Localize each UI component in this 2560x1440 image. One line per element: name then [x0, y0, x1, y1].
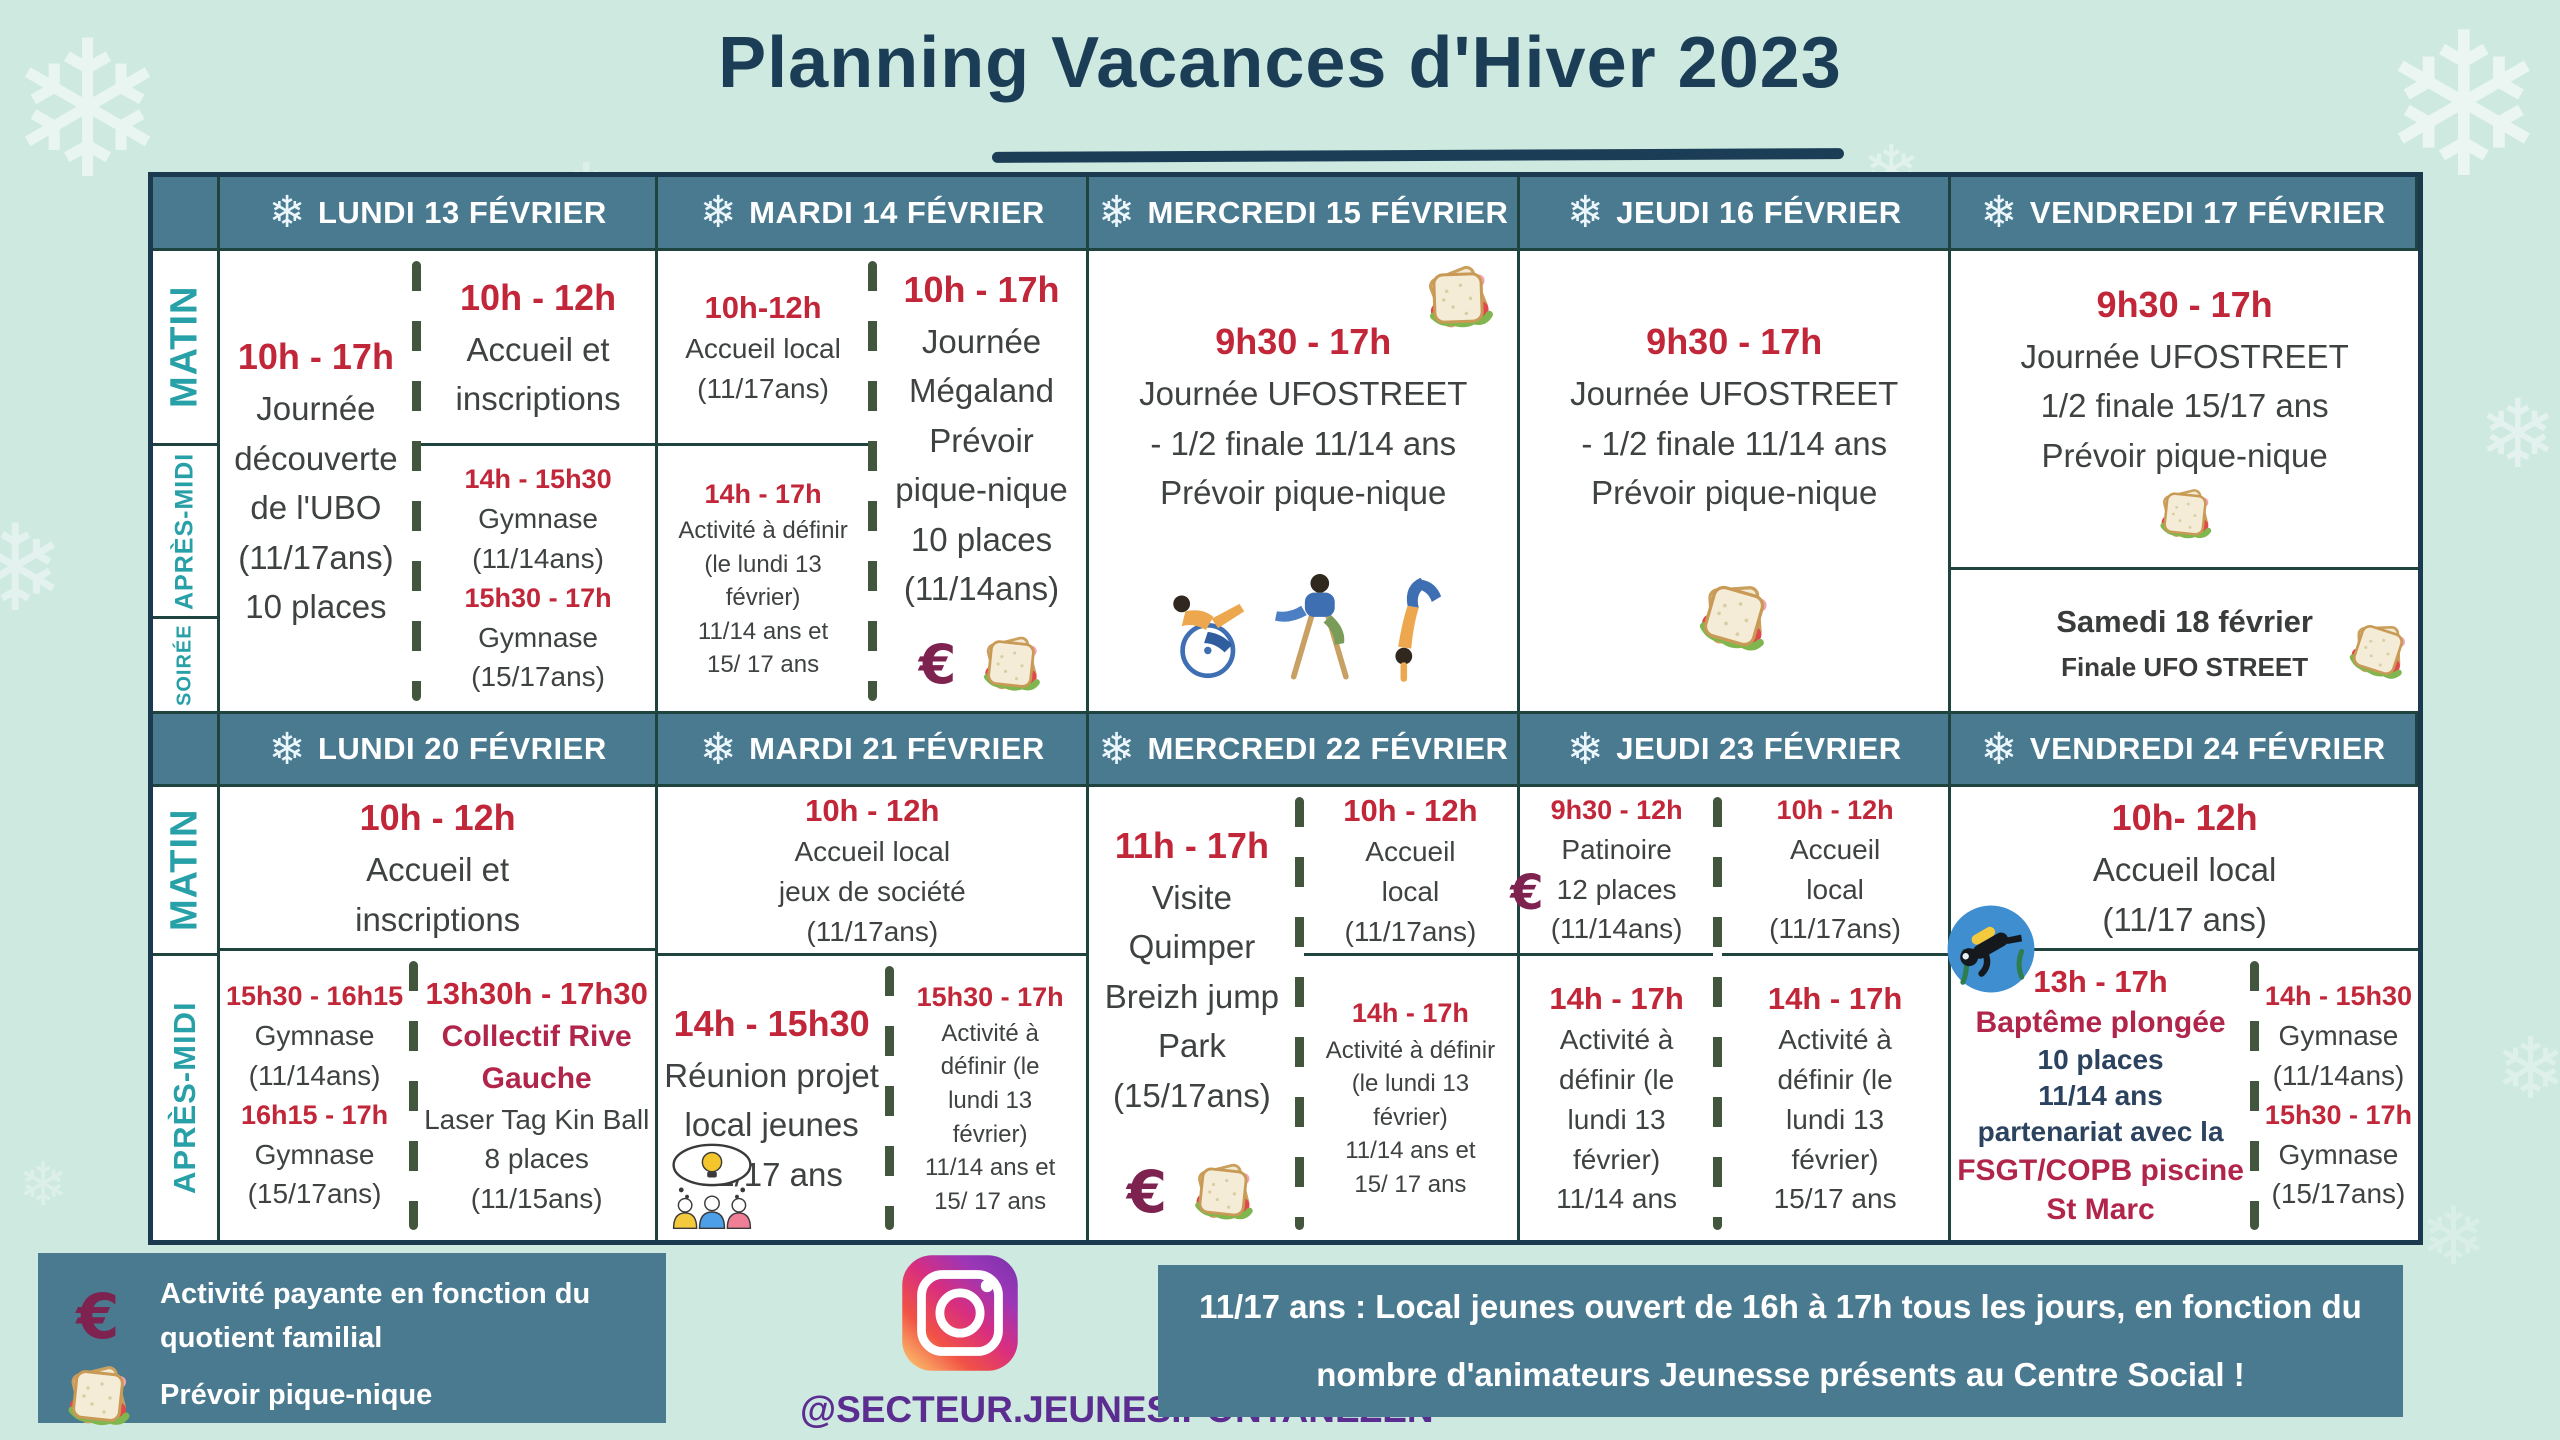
text-line: (11/14ans) — [904, 564, 1059, 614]
text-line: février) — [1373, 1101, 1448, 1135]
text-line: 13h30h - 17h30 — [426, 972, 648, 1015]
text-line: 14h - 15h30 — [674, 997, 870, 1051]
cell-activite-a-definir: 14h - 17hActivité à définir(le lundi 13f… — [658, 446, 867, 711]
snowflake-decoration: ❄ — [18, 1150, 68, 1220]
text-line: (11/17ans) — [806, 912, 938, 952]
sandwich-icon — [2155, 484, 2215, 544]
text-line: Journée UFOSTREET — [1139, 369, 1467, 419]
day-header-label: LUNDI 20 FÉVRIER — [318, 731, 607, 767]
text-line: découverte — [234, 434, 397, 484]
cell-bapteme-plongee: 13h - 17hBaptême plongée10 places11/14 a… — [1951, 958, 2250, 1232]
day-header-jeudi-23: ❄JEUDI 23 FÉVRIER — [1520, 711, 1951, 787]
day-header-lundi-20: ❄LUNDI 20 FÉVRIER — [220, 711, 658, 787]
text-line: (11/14ans) — [472, 539, 604, 579]
text-line: Activité à définir — [1326, 1034, 1495, 1068]
text-line: 11/14 ans et — [1345, 1134, 1475, 1168]
text-line: février) — [1573, 1140, 1660, 1180]
text-line: 9h30 - 12h — [1551, 791, 1683, 830]
snowflake-icon: ❄ — [1981, 724, 2018, 775]
text-line: Journée — [256, 384, 375, 434]
text-line: Accueil — [1365, 832, 1455, 872]
text-line: 15/17 ans — [1774, 1179, 1897, 1219]
text-line: lundi 13 — [948, 1084, 1032, 1118]
text-line: 10h - 17h — [238, 330, 394, 384]
cell-patinoire: 9h30 - 12hPatinoire12 places(11/14ans) — [1520, 787, 1713, 953]
snowflake-decoration: ❄ — [2478, 380, 2558, 490]
snowflake-decoration: ❄ — [0, 500, 66, 639]
text-line: Baptême plongée — [1976, 1003, 2226, 1042]
text-line: Activité à — [1560, 1020, 1674, 1060]
snowflake-icon: ❄ — [1981, 187, 2018, 238]
day-header-label: VENDREDI 24 FÉVRIER — [2030, 731, 2386, 767]
text-line: (15/17ans) — [248, 1174, 382, 1214]
text-line: 14h - 15h30 — [465, 460, 612, 499]
day-cell-jeudi-23: € 9h30 - 12hPatinoire12 places(11/14ans)… — [1520, 787, 1951, 1240]
instagram-block: @SECTEUR.JEUNES.PONTANEZEN — [800, 1250, 1120, 1431]
text-line: 14h - 17h — [1549, 977, 1683, 1020]
text-line: Gymnase — [2279, 1135, 2399, 1175]
cell-gymnase-vendredi24: 14h - 15h30Gymnase(11/14ans)15h30 - 17hG… — [2259, 951, 2418, 1240]
text-line: (11/15ans) — [471, 1179, 603, 1219]
cell-activite-11-14: 14h - 17hActivité àdéfinir (lelundi 13fé… — [1520, 956, 1713, 1240]
text-line: 15/ 17 ans — [1354, 1168, 1466, 1202]
day-header-label: MARDI 21 FÉVRIER — [749, 731, 1045, 767]
cell-accueil-local: 10h - 12hAccueillocal(11/17ans) — [1304, 787, 1518, 953]
legend-text: Prévoir pique-nique — [160, 1374, 432, 1418]
text-line: (le lundi 13 — [704, 548, 821, 582]
snowflake-icon: ❄ — [1567, 724, 1604, 775]
text-line: partenariat avec la — [1978, 1114, 2224, 1150]
text-line: Prévoir pique-nique — [1160, 468, 1446, 518]
row-label-matin: MATIN — [153, 251, 217, 443]
breakdancers-illustration — [1153, 546, 1453, 686]
text-line: 10h - 12h — [460, 271, 616, 325]
text-line: (15/17ans) — [1113, 1071, 1271, 1121]
snowflake-icon: ❄ — [269, 724, 306, 775]
day-header-vendredi-17: ❄VENDREDI 17 FÉVRIER — [1951, 177, 2418, 251]
sandwich-icon — [1189, 1158, 1257, 1226]
sandwich-icon — [2340, 612, 2416, 688]
text-line: Samedi 18 février — [2056, 596, 2313, 649]
cell-accueil-local: 10h-12hAccueil local(11/17ans) — [658, 251, 867, 443]
instagram-handle: @SECTEUR.JEUNES.PONTANEZEN — [800, 1389, 1120, 1431]
header-corner-week2 — [153, 711, 220, 787]
text-line: (11/17ans) — [697, 369, 829, 409]
dashed-separator — [409, 961, 418, 1230]
text-line: 12 places — [1557, 870, 1677, 910]
instagram-icon — [897, 1250, 1023, 1376]
cell-accueil-local: 10h - 12hAccueillocal(11/17ans) — [1722, 787, 1948, 953]
text-line: Gauche — [482, 1058, 592, 1100]
text-line: Accueil local — [794, 832, 950, 872]
euro-icon: € — [1127, 1158, 1167, 1226]
snowflake-icon: ❄ — [700, 187, 737, 238]
snowflake-icon: ❄ — [700, 724, 737, 775]
day-header-mercredi-15: ❄MERCREDI 15 FÉVRIER — [1089, 177, 1520, 251]
text-line: 13h - 17h — [2033, 962, 2167, 1002]
cell-quimper-breizh-jump: 11h - 17hVisiteQuimperBreizh jumpPark(15… — [1089, 787, 1294, 1152]
dashed-separator — [1713, 797, 1722, 1230]
day-header-label: JEUDI 23 FÉVRIER — [1616, 731, 1901, 767]
text-line: inscriptions — [355, 895, 520, 945]
text-line: définir (le — [1559, 1060, 1674, 1100]
text-line: FSGT/COPB piscine — [1957, 1151, 2244, 1190]
text-line: Gymnase — [255, 1016, 375, 1056]
text-line: (11/14ans) — [249, 1056, 381, 1096]
text-line: 1/2 finale 15/17 ans — [2041, 381, 2329, 431]
day-cell-mardi-14: 10h-12hAccueil local(11/17ans) 14h - 17h… — [658, 251, 1089, 711]
legend-item-paid-activity: € Activité payante en fonction du quotie… — [62, 1273, 642, 1360]
sandwich-icon — [1689, 571, 1779, 661]
cell-gymnase-lundi20: 15h30 - 16h15Gymnase(11/14ans)16h15 - 17… — [220, 951, 409, 1240]
sandwich-icon — [62, 1360, 134, 1432]
text-line: 11/14 ans — [2038, 1078, 2163, 1114]
text-line: Quimper — [1129, 922, 1256, 972]
text-line: (11/17ans) — [238, 533, 393, 583]
euro-icon: € — [919, 633, 957, 696]
row-label-apres-midi: APRÈS-MIDI — [153, 956, 217, 1240]
row-labels-week1: MATIN APRÈS-MIDI SOIRÉE — [153, 251, 220, 711]
day-header-mercredi-22: ❄MERCREDI 22 FÉVRIER — [1089, 711, 1520, 787]
cell-activite-a-definir: 15h30 - 17hActivité àdéfinir (lelundi 13… — [894, 956, 1086, 1240]
text-line: St Marc — [2046, 1190, 2154, 1229]
text-line: (le lundi 13 — [1352, 1067, 1469, 1101]
text-line: 9h30 - 17h — [1646, 315, 1822, 369]
cell-activite-15-17: 14h - 17hActivité àdéfinir (lelundi 13fé… — [1722, 956, 1948, 1240]
sandwich-icon — [1416, 256, 1500, 340]
day-header-label: MERCREDI 22 FÉVRIER — [1147, 731, 1508, 767]
text-line: Activité à — [1778, 1020, 1892, 1060]
dashed-separator — [885, 966, 894, 1230]
text-line: (15/17ans) — [471, 657, 605, 697]
text-line: Prévoir pique-nique — [2042, 431, 2328, 481]
text-line: Visite — [1152, 873, 1232, 923]
text-line: - 1/2 finale 11/14 ans — [1581, 419, 1887, 469]
text-line: jeux de société — [779, 872, 966, 912]
text-line: Patinoire — [1561, 830, 1672, 870]
planning-table: ❄LUNDI 13 FÉVRIER ❄MARDI 14 FÉVRIER ❄MER… — [148, 172, 2423, 1245]
snowflake-icon: ❄ — [269, 187, 306, 238]
legend: € Activité payante en fonction du quotie… — [38, 1253, 666, 1423]
text-line: 9h30 - 17h — [2097, 278, 2273, 332]
text-line: Gymnase — [478, 618, 598, 658]
row-label-matin: MATIN — [153, 787, 217, 953]
header-corner-week1 — [153, 177, 220, 251]
text-line: Prévoir — [929, 416, 1034, 466]
text-line: nombre d'animateurs Jeunesse présents au… — [1316, 1341, 2245, 1409]
text-line: Accueil local — [685, 329, 841, 369]
day-header-label: VENDREDI 17 FÉVRIER — [2030, 195, 2386, 231]
snowflake-icon: ❄ — [1098, 724, 1135, 775]
legend-item-picnic: Prévoir pique-nique — [62, 1360, 642, 1432]
text-line: Gymnase — [478, 499, 598, 539]
snowflake-decoration: ❄ — [2420, 1190, 2487, 1283]
day-header-label: LUNDI 13 FÉVRIER — [318, 195, 607, 231]
day-header-mardi-21: ❄MARDI 21 FÉVRIER — [658, 711, 1089, 787]
cell-megaland-icons: € — [877, 625, 1086, 711]
day-cell-vendredi-24: 10h- 12hAccueil local(11/17 ans) 13h - 1… — [1951, 787, 2418, 1240]
text-line: 14h - 15h30 — [2265, 977, 2412, 1016]
text-line: lundi 13 — [1568, 1100, 1666, 1140]
text-line: février) — [1792, 1140, 1879, 1180]
dashed-separator — [868, 261, 877, 701]
cell-activite-a-definir: 14h - 17hActivité à définir(le lundi 13f… — [1304, 956, 1518, 1240]
day-header-mardi-14: ❄MARDI 14 FÉVRIER — [658, 177, 1089, 251]
text-line: Activité à — [941, 1017, 1038, 1051]
day-cell-lundi-20: 10h - 12hAccueil etinscriptions 15h30 - … — [220, 787, 658, 1240]
cell-ubo-day: 10h - 17hJournéedécouvertede l'UBO(11/17… — [220, 251, 412, 711]
text-line: Activité à définir — [678, 514, 847, 548]
day-cell-mercredi-22: 11h - 17hVisiteQuimperBreizh jumpPark(15… — [1089, 787, 1520, 1240]
text-line: 15h30 - 17h — [2265, 1096, 2412, 1135]
text-line: Gymnase — [2279, 1016, 2399, 1056]
text-line: Journée — [922, 317, 1041, 367]
text-line: 15/ 17 ans — [934, 1185, 1046, 1219]
text-line: Accueil et — [467, 325, 610, 375]
text-line: février) — [726, 581, 801, 615]
text-line: 15h30 - 16h15 — [226, 977, 403, 1016]
text-line: 16h15 - 17h — [241, 1096, 388, 1135]
text-line: 11/17 ans : Local jeunes ouvert de 16h à… — [1199, 1273, 2362, 1341]
text-line: définir (le — [1777, 1060, 1892, 1100]
cell-collectif-rive-gauche: 13h30h - 17h30Collectif RiveGaucheLaser … — [418, 951, 655, 1240]
text-line: (11/14ans) — [1551, 909, 1683, 949]
text-line: 14h - 17h — [1352, 994, 1469, 1033]
text-line: lundi 13 — [1786, 1100, 1884, 1140]
cell-gymnase-lundi13: 14h - 15h30Gymnase(11/14ans)15h30 - 17hG… — [421, 446, 655, 711]
dashed-separator — [1295, 797, 1304, 1230]
text-line: Accueil et — [366, 845, 509, 895]
text-line: (11/17ans) — [1345, 912, 1477, 952]
text-line: Laser Tag Kin Ball — [424, 1100, 649, 1140]
scuba-diver-icon — [1945, 903, 2037, 995]
day-cell-vendredi-17: 9h30 - 17hJournée UFOSTREET1/2 finale 15… — [1951, 251, 2418, 711]
info-banner: 11/17 ans : Local jeunes ouvert de 16h à… — [1158, 1265, 2403, 1417]
text-line: 10h - 12h — [1343, 789, 1477, 832]
text-line: 10h - 12h — [1777, 791, 1894, 830]
text-line: 10 places — [911, 515, 1052, 565]
cell-ufostreet-15-17: 9h30 - 17hJournée UFOSTREET1/2 finale 15… — [1951, 274, 2418, 485]
text-line: Finale UFO STREET — [2061, 649, 2308, 685]
sandwich-icon — [978, 631, 1044, 697]
text-line: 9h30 - 17h — [1215, 315, 1391, 369]
legend-text: Activité payante en fonction du quotient… — [160, 1273, 642, 1360]
text-line: 14h - 17h — [1768, 977, 1902, 1020]
cell-megaland: 10h - 17hJournéeMégalandPrévoirpique-niq… — [877, 251, 1086, 625]
text-line: 10 places — [245, 582, 386, 632]
text-line: (11/17ans) — [1769, 909, 1901, 949]
text-line: 15h30 - 17h — [465, 579, 612, 618]
text-line: (15/17ans) — [2272, 1174, 2406, 1214]
text-line: 11h - 17h — [1115, 819, 1269, 873]
row-labels-week2: MATIN APRÈS-MIDI — [153, 787, 220, 1240]
day-header-lundi-13: ❄LUNDI 13 FÉVRIER — [220, 177, 658, 251]
text-line: 8 places — [485, 1139, 589, 1179]
row-label-apres-midi: APRÈS-MIDI — [153, 446, 217, 616]
text-line: Prévoir pique-nique — [1591, 468, 1877, 518]
cell-quimper-icons: € — [1089, 1152, 1294, 1240]
euro-icon: € — [1510, 865, 1543, 921]
text-line: (11/17 ans) — [2102, 895, 2266, 945]
snowflake-decoration: ❄ — [2495, 1020, 2560, 1119]
euro-icon: € — [62, 1280, 134, 1353]
cell-samedi-18-finale: Samedi 18 févrierFinale UFO STREET — [2050, 592, 2319, 689]
text-line: Collectif Rive — [442, 1016, 632, 1058]
text-line: Mégaland — [909, 366, 1054, 416]
text-line: Journée UFOSTREET — [1570, 369, 1898, 419]
text-line: Breizh jump — [1105, 972, 1279, 1022]
text-line: Accueil local — [2093, 845, 2276, 895]
snowflake-icon: ❄ — [1567, 187, 1604, 238]
text-line: Réunion projet — [664, 1051, 879, 1101]
text-line: février) — [953, 1118, 1028, 1152]
text-line: Park — [1158, 1021, 1226, 1071]
snowflake-icon: ❄ — [1098, 187, 1135, 238]
row-label-soiree: SOIRÉE — [153, 619, 217, 711]
day-cell-jeudi-16: 9h30 - 17hJournée UFOSTREET- 1/2 finale … — [1520, 251, 1951, 711]
team-brainstorm-icon — [664, 1140, 760, 1236]
cell-accueil-inscriptions: 10h - 12hAccueil etinscriptions — [220, 787, 655, 948]
text-line: (11/14ans) — [2273, 1056, 2405, 1096]
day-header-vendredi-24: ❄VENDREDI 24 FÉVRIER — [1951, 711, 2418, 787]
day-header-label: MERCREDI 15 FÉVRIER — [1147, 195, 1508, 231]
day-header-jeudi-16: ❄JEUDI 16 FÉVRIER — [1520, 177, 1951, 251]
text-line: 15h30 - 17h — [917, 978, 1064, 1017]
text-line: 10h - 12h — [805, 789, 939, 832]
text-line: Gymnase — [255, 1135, 375, 1175]
text-line: 10h- 12h — [2112, 791, 2258, 845]
text-line: 10h-12h — [704, 286, 821, 329]
cell-accueil-inscriptions: 10h - 12hAccueil etinscriptions — [421, 251, 655, 443]
text-line: Journée UFOSTREET — [2020, 332, 2348, 382]
text-line: 11/14 ans et — [925, 1151, 1055, 1185]
day-cell-lundi-13: 10h - 17hJournéedécouvertede l'UBO(11/17… — [220, 251, 658, 711]
text-line: 15/ 17 ans — [707, 648, 819, 682]
title-underline — [992, 148, 1844, 163]
text-line: Accueil — [1790, 830, 1880, 870]
day-cell-mardi-21: 10h - 12hAccueil localjeux de société(11… — [658, 787, 1089, 1240]
text-line: de l'UBO — [250, 483, 381, 533]
text-line: 14h - 17h — [705, 475, 822, 514]
dashed-separator — [2250, 961, 2259, 1230]
text-line: - 1/2 finale 11/14 ans — [1150, 419, 1456, 469]
day-header-label: MARDI 14 FÉVRIER — [749, 195, 1045, 231]
text-line: pique-nique — [895, 465, 1067, 515]
text-line: 11/14 ans — [1556, 1179, 1677, 1219]
page-title: Planning Vacances d'Hiver 2023 — [0, 22, 2560, 104]
text-line: 11/14 ans et — [698, 615, 828, 649]
text-line: 10h - 17h — [903, 263, 1059, 317]
text-line: 10 places — [2038, 1042, 2164, 1078]
day-header-label: JEUDI 16 FÉVRIER — [1616, 195, 1901, 231]
cell-ufostreet-11-14: 9h30 - 17hJournée UFOSTREET- 1/2 finale … — [1520, 251, 1948, 522]
cell-accueil-jeux-societe: 10h - 12hAccueil localjeux de société(11… — [658, 787, 1086, 953]
text-line: inscriptions — [456, 374, 621, 424]
dashed-separator — [412, 261, 421, 701]
day-cell-mercredi-15: 9h30 - 17hJournée UFOSTREET- 1/2 finale … — [1089, 251, 1520, 711]
text-line: définir (le — [941, 1050, 1040, 1084]
text-line: local — [1806, 870, 1864, 910]
text-line: local — [1382, 872, 1440, 912]
text-line: 10h - 12h — [360, 791, 516, 845]
